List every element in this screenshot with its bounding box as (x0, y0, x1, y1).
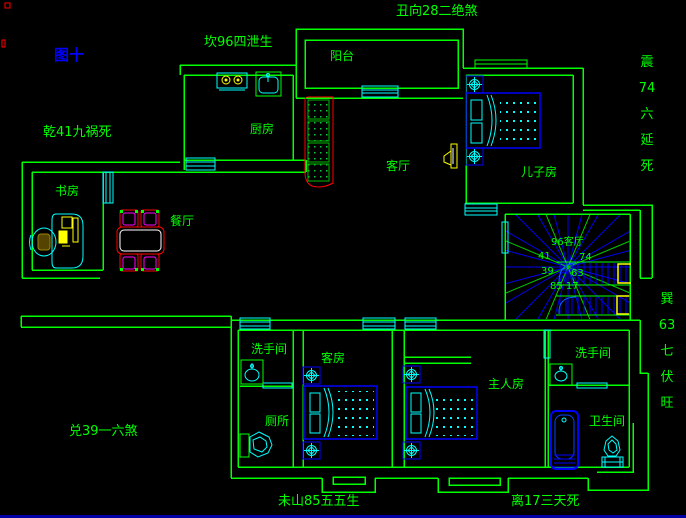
toilet-right (602, 436, 623, 467)
stair-compass-s: 85 17 (550, 282, 579, 292)
bed-son-room (466, 93, 540, 148)
stair-compass-ne: 74 (579, 253, 592, 263)
bed-guest-room (304, 386, 377, 439)
room-label-toilet: 厕所 (265, 415, 289, 427)
room-label-guest-room: 客房 (321, 352, 345, 364)
stair-compass-nw: 41 (538, 252, 551, 262)
fengshui-label-northwest: 乾41九祸死 (43, 126, 112, 139)
room-label-dining-room: 餐厅 (170, 215, 194, 227)
bathtub (551, 411, 578, 469)
fengshui-label-north: 坎96四泄生 (204, 36, 273, 49)
bathroom-sink-right (550, 364, 572, 385)
fengshui-label-southeast-vertical: 巽 63 七 伏 旺 (650, 287, 684, 417)
bathroom-sink-left (241, 360, 263, 384)
dining-table-set (117, 210, 164, 271)
stair-compass-e: 63 (571, 269, 584, 279)
room-label-kitchen: 厨房 (250, 123, 274, 135)
figure-label: 图十 (54, 48, 84, 63)
dining-chair (120, 210, 159, 271)
window-study (103, 172, 113, 203)
room-label-washroom-left: 洗手间 (251, 343, 287, 355)
fengshui-label-facing: 丑向28二绝煞 (396, 5, 478, 18)
corner-marks (2, 3, 10, 47)
fengshui-label-east-vertical: 震 74 六 延 死 (630, 50, 664, 180)
room-label-master-room: 主人房 (488, 378, 524, 390)
fengshui-label-west: 兑39一六煞 (69, 425, 138, 438)
stair-rail (617, 264, 631, 314)
room-label-balcony: 阳台 (330, 50, 354, 62)
bed-master-room (406, 387, 477, 439)
toilet-left (240, 432, 272, 457)
stair-compass-top: 96客厅 (551, 238, 584, 248)
room-label-living-room: 客厅 (386, 160, 410, 172)
tv (444, 144, 457, 168)
room-label-washroom-right: 洗手间 (575, 347, 611, 359)
sofa (305, 97, 333, 187)
floorplan-canvas[interactable]: 图十 丑向28二绝煞 坎96四泄生 乾41九祸死 兑39一六煞 未山85五五生 … (0, 0, 686, 518)
fengshui-label-south: 离17三天死 (511, 495, 580, 508)
computer (59, 217, 78, 246)
room-label-bathroom: 卫生间 (589, 415, 625, 427)
room-label-study: 书房 (55, 185, 79, 197)
window-son-room (465, 204, 497, 215)
stair-compass-w: 39 (541, 267, 554, 277)
room-label-son-room: 儿子房 (521, 166, 557, 178)
bay-window-son-room (475, 60, 527, 68)
fengshui-label-mountain: 未山85五五生 (278, 495, 360, 508)
